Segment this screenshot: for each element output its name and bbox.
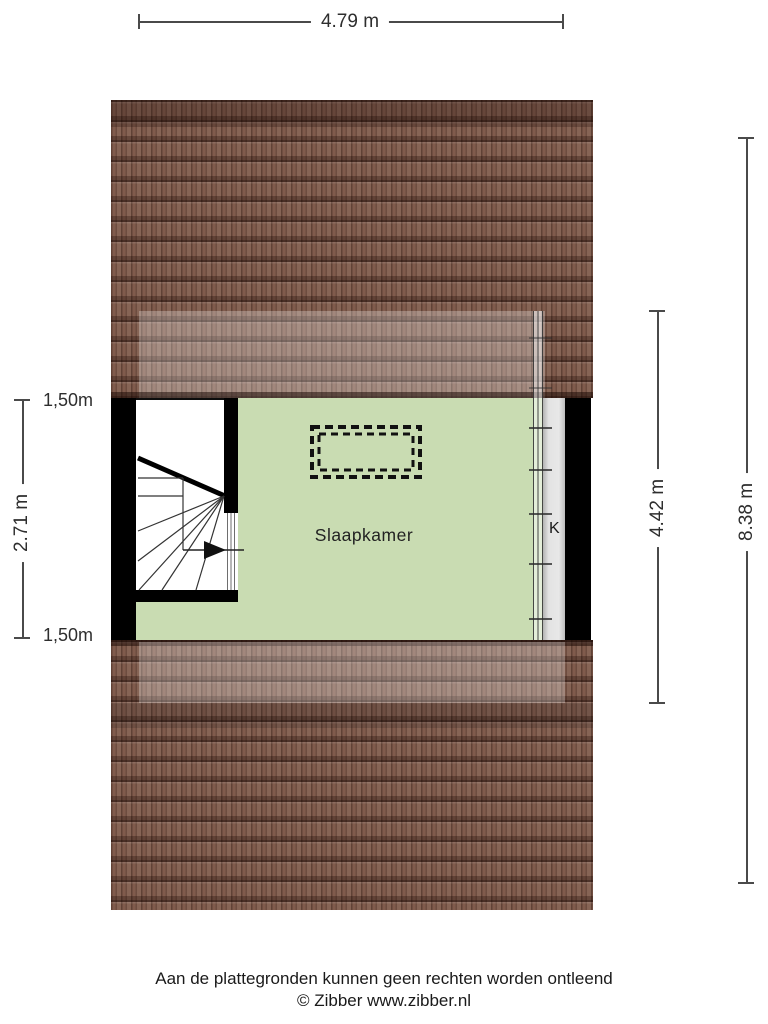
dimension-label-total-height: 8.38 m	[735, 473, 759, 551]
roof-ridge-band	[111, 100, 593, 127]
roof-lower	[111, 640, 593, 910]
closet-shelf-mark	[529, 513, 552, 515]
dimension-tick	[738, 137, 754, 139]
closet-shelf-mark	[529, 563, 552, 565]
closet-shelf-mark	[529, 469, 552, 471]
dimension-label-knee-bottom: 1,50m	[40, 625, 96, 646]
roof-upper-lowlight-zone	[139, 311, 545, 398]
roof-upper	[111, 100, 593, 398]
footer-credit: © Zibber www.zibber.nl	[0, 991, 768, 1011]
wall-right	[565, 398, 591, 640]
room-name-label: Slaapkamer	[284, 525, 444, 546]
floorplan-page: 4.79 m Slaapkamer K	[0, 0, 768, 1024]
dimension-tick	[649, 702, 665, 704]
staircase-treads-drawing	[136, 398, 248, 602]
closet-shelf-mark	[529, 427, 552, 429]
closet-label: K	[549, 520, 560, 538]
dimension-label-knee-top: 1,50m	[40, 390, 96, 411]
footer-disclaimer: Aan de plattegronden kunnen geen rechten…	[0, 969, 768, 989]
roof-lower-lowlight-zone	[139, 642, 565, 703]
closet-strip	[543, 398, 565, 640]
roof-lower-shade-band	[111, 703, 593, 728]
dimension-tick	[738, 882, 754, 884]
wall-left	[111, 398, 136, 640]
dimension-tick	[138, 14, 140, 29]
closet-shelf-mark	[529, 387, 552, 389]
dimension-tick	[562, 14, 564, 29]
dimension-label-width: 4.79 m	[311, 10, 389, 34]
stair-direction-arrow-icon	[204, 541, 226, 559]
dimension-tick	[649, 310, 665, 312]
dimension-label-left-height: 2.71 m	[10, 484, 34, 562]
closet-shelf-mark	[529, 337, 552, 339]
closet-shelf-mark	[529, 618, 552, 620]
dimension-tick	[14, 399, 30, 401]
dimension-label-inner-height: 4.42 m	[646, 469, 670, 547]
skylight-dashed-outline	[308, 423, 424, 481]
dimension-tick	[14, 637, 30, 639]
